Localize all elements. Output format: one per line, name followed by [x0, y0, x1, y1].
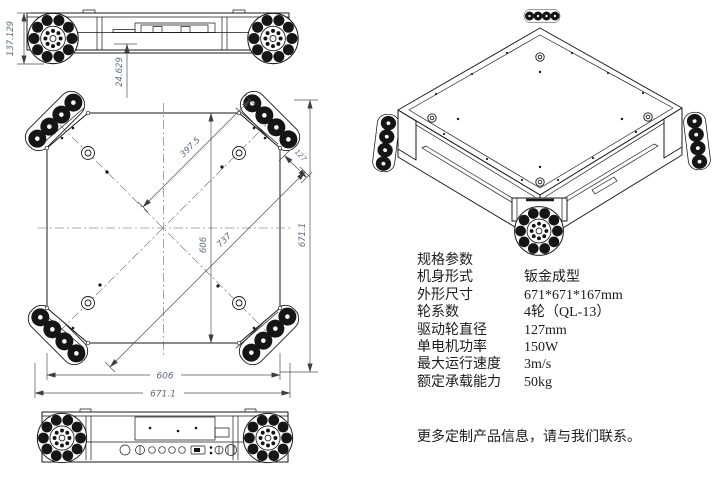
spec-label: 机身形式 [417, 269, 524, 286]
mecanum-wheel-rear-right [243, 413, 292, 462]
dim-ground-clearance-label: 24.629 [115, 57, 125, 87]
rear-view [18, 398, 328, 481]
mecanum-wheel-front-left [28, 13, 78, 63]
spec-label: 单电机功率 [417, 339, 524, 356]
spec-label: 驱动轮直径 [417, 322, 524, 339]
dim-overall-height-right-label: 671.1 [298, 223, 308, 247]
mecanum-wheel-front-right [248, 13, 298, 63]
mecanum-wheel-iso-left [372, 113, 401, 173]
spec-panel: 规格参数 机身形式 钣金成型 外形尺寸 671*671*167mm 轮系数 4轮… [417, 252, 623, 391]
spec-label: 最大运行速度 [417, 356, 524, 373]
dim-wheel-label: 127 [293, 148, 308, 163]
spec-value: 671*671*167mm [524, 287, 623, 304]
spec-row-wheel-diameter: 驱动轮直径 127mm [417, 322, 623, 339]
technical-drawing-sheet: 137.129 24.629 [0, 0, 715, 481]
spec-row-wheel-count: 轮系数 4轮（QL-13） [417, 304, 623, 321]
spec-value: 127mm [524, 322, 567, 339]
spec-value: 钣金成型 [524, 269, 580, 286]
dim-inner-height-label: 606 [199, 236, 209, 253]
spec-row-body-type: 机身形式 钣金成型 [417, 269, 623, 286]
spec-value: 50kg [524, 374, 552, 391]
spec-label: 轮系数 [417, 304, 524, 321]
rear-connector-panel [120, 445, 237, 456]
spec-row-motor-power: 单电机功率 150W [417, 339, 623, 356]
spec-title: 规格参数 [417, 252, 623, 269]
mecanum-wheel-iso-front [515, 207, 564, 256]
spec-label: 额定承载能力 [417, 374, 524, 391]
contact-note: 更多定制产品信息，请与我们联系。 [417, 426, 641, 446]
spec-label: 外形尺寸 [417, 287, 524, 304]
mecanum-wheel-rear-left [37, 413, 86, 462]
spec-row-payload: 额定承载能力 50kg [417, 374, 623, 391]
dim-inner-width-label: 606 [156, 372, 173, 382]
spec-value: 4轮（QL-13） [524, 304, 610, 321]
mecanum-wheel-iso-right [683, 111, 712, 171]
spec-row-dimensions: 外形尺寸 671*671*167mm [417, 287, 623, 304]
spec-value: 3m/s [524, 356, 551, 373]
mecanum-wheel-iso-back [524, 10, 560, 23]
spec-row-max-speed: 最大运行速度 3m/s [417, 356, 623, 373]
isometric-view [370, 0, 715, 256]
dim-overall-height-label: 137.129 [6, 21, 16, 56]
spec-value: 150W [524, 339, 558, 356]
top-view: 397.5 737 127 606 671.1 606 671.1 [0, 85, 340, 400]
